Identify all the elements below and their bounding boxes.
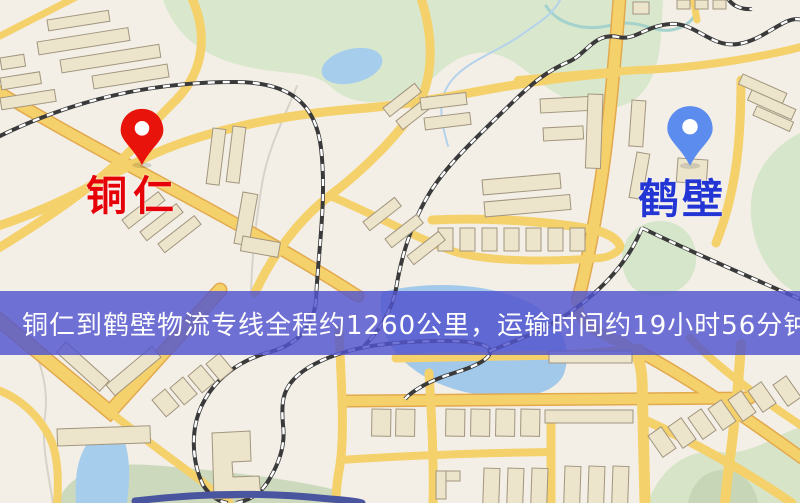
origin-city-label: 铜仁 [86, 176, 180, 217]
map-canvas [0, 0, 800, 503]
logistics-route-map: 铜仁 鹤壁 铜仁到鹤壁物流专线全程约1260公里，运输时间约19小时56分钟. [0, 0, 800, 503]
route-info-banner: 铜仁到鹤壁物流专线全程约1260公里，运输时间约19小时56分钟. [0, 291, 800, 355]
destination-city-label: 鹤壁 [638, 179, 726, 220]
route-info-text: 铜仁到鹤壁物流专线全程约1260公里，运输时间约19小时56分钟. [22, 305, 800, 342]
